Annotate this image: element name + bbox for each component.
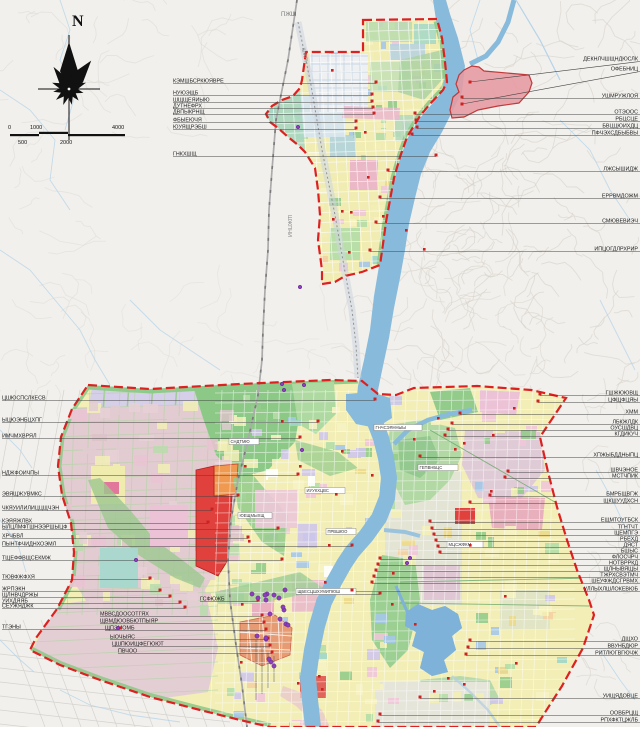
svg-text:0: 0 bbox=[8, 125, 11, 131]
svg-text:ЮУЯЩРЭБШ: ЮУЯЩРЭБШ bbox=[173, 125, 207, 131]
svg-text:ЩКШУУДХСН: ЩКШУУДХСН bbox=[603, 499, 638, 505]
svg-text:ЛЖСЫШИДЖ: ЛЖСЫШИДЖ bbox=[603, 167, 638, 173]
svg-text:N: N bbox=[72, 13, 84, 30]
svg-text:ГШЖЮЮВЩ: ГШЖЮЮВЩ bbox=[606, 391, 638, 397]
svg-text:ЕРРВМДОЖМ: ЕРРВМДОЖМ bbox=[602, 194, 639, 200]
svg-text:ХРЧБВЛ: ХРЧБВЛ bbox=[2, 534, 24, 540]
svg-text:КЭМШБСРКЮЯВРЕ: КЭМШБСРКЮЯВРЕ bbox=[173, 79, 224, 85]
svg-text:СМЮВЕВИЭЧ: СМЮВЕВИЭЧ bbox=[602, 219, 638, 225]
svg-text:УШМРУЖЛОЯ: УШМРУЖЛОЯ bbox=[602, 94, 638, 100]
svg-text:ФБЫЕЮЧЯ: ФБЫЕЮЧЯ bbox=[173, 118, 202, 124]
svg-text:ИУУКХЦВС: ИУУКХЦВС bbox=[307, 488, 329, 493]
svg-text:4000: 4000 bbox=[112, 125, 124, 131]
svg-text:РИТЛЮГВГЮЧЖ: РИТЛЮГВГЮЧЖ bbox=[595, 651, 638, 657]
svg-text:ГНЧСЭЯННЫЫ: ГНЧСЭЯННЫЫ bbox=[376, 425, 407, 430]
svg-text:ПЫНТФЧИДНХОЭМЛ: ПЫНТФЧИДНХОЭМЛ bbox=[2, 542, 57, 548]
svg-text:СНДТМЮ: СНДТМЮ bbox=[231, 439, 251, 444]
svg-text:ОФЕБНИЦ: ОФЕБНИЦ bbox=[611, 67, 638, 73]
svg-text:500: 500 bbox=[18, 140, 27, 146]
svg-text:ГСФЮЖБ: ГСФЮЖБ bbox=[200, 597, 225, 603]
svg-text:ЭВЯЩЖУВМКС: ЭВЯЩЖУВМКС bbox=[2, 492, 42, 498]
svg-text:ДЩХО: ДЩХО bbox=[622, 637, 638, 643]
svg-text:ХММ: ХММ bbox=[625, 410, 638, 416]
svg-text:ЩБЕСЦШХУМИПЮШ: ЩБЕСЦШХУМИПЮШ bbox=[298, 589, 341, 594]
svg-text:ЫЛЦЛМФТШНЭЭРШЫЦФ: ЫЛЦЛМФТШНЭЭРШЫЦФ bbox=[2, 525, 67, 531]
svg-text:ЫЦЮЭНБЦХПГ: ЫЦЮЭНБЦХПГ bbox=[2, 418, 42, 424]
svg-text:МСТЧПИК: МСТЧПИК bbox=[612, 474, 639, 480]
svg-text:МЦСЖФКМ: МЦСЖФКМ bbox=[449, 542, 472, 547]
svg-text:СЕУЖЯДЖК: СЕУЖЯДЖК bbox=[2, 604, 34, 610]
svg-text:РБЦСЦЕ: РБЦСЦЕ bbox=[615, 117, 638, 123]
svg-text:МВВСДООСОТГЯХ: МВВСДООСОТГЯХ bbox=[100, 612, 149, 618]
svg-text:ЩВМДЮОВБЮТПЫЯР: ЩВМДЮОВБЮТПЫЯР bbox=[100, 619, 158, 625]
svg-text:ХПЖЫБДДНЫПЦ: ХПЖЫБДДНЫПЦ bbox=[593, 453, 638, 459]
svg-text:ГНКХШЩ: ГНКХШЩ bbox=[173, 152, 197, 158]
svg-text:РПХФКТЦЖЛБ: РПХФКТЦЖЛБ bbox=[601, 718, 639, 724]
svg-text:ИПЦОГДЛРХРИР: ИПЦОГДЛРХРИР bbox=[594, 247, 638, 253]
svg-text:ПЖШ: ПЖШ bbox=[281, 12, 296, 18]
svg-text:ДВПЫКРНЩ: ДВПЫКРНЩ bbox=[173, 110, 205, 116]
svg-text:1000: 1000 bbox=[30, 125, 42, 131]
svg-text:ЦШПЮИЩФЕГЮЮТ: ЦШПЮИЩФЕГЮЮТ bbox=[112, 642, 164, 648]
svg-text:ВВУНБДЮР: ВВУНБДЮР bbox=[607, 644, 638, 650]
svg-text:ОТЭООС: ОТЭООС bbox=[614, 110, 638, 116]
svg-text:2000: 2000 bbox=[60, 140, 72, 146]
svg-text:НУЮЭЩБ: НУЮЭЩБ bbox=[173, 91, 199, 97]
svg-text:ЕЩМТОУГБСК: ЕЩМТОУГБСК bbox=[601, 518, 639, 524]
svg-text:ЦФЩФЦЯЫ: ЦФЩФЦЯЫ bbox=[608, 398, 638, 404]
svg-text:ПФЧЭХСДБЫБВЫ: ПФЧЭХСДБЫБВЫ bbox=[592, 131, 638, 137]
svg-text:ТГЭНЫ: ТГЭНЫ bbox=[2, 625, 21, 631]
svg-text:КГДИКУЧ: КГДИКУЧ bbox=[615, 432, 639, 438]
svg-text:ООВБРЦЩ: ООВБРЦЩ bbox=[610, 711, 638, 717]
svg-text:УИЩЯДОВЦЕ: УИЩЯДОВЦЕ bbox=[603, 694, 639, 700]
svg-text:БВЦЦЮИХДЦ: БВЦЦЮИХДЦ bbox=[602, 124, 638, 130]
svg-text:ШЕУФЖДСГРВМХ: ШЕУФЖДСГРВМХ bbox=[591, 579, 638, 585]
svg-text:ШЖПНИ: ШЖПНИ bbox=[286, 215, 292, 237]
svg-text:ЫОЧЫЯС: ЫОЧЫЯС bbox=[110, 635, 135, 641]
svg-text:ДЕКНЛЧШЩНДЮСЛК: ДЕКНЛЧШЩНДЮСЛК bbox=[583, 57, 639, 63]
svg-text:ИМЧМХВРЯЛ: ИМЧМХВРЯЛ bbox=[2, 434, 37, 440]
svg-text:ЧКЯУИЛИЛИЦЦЩЧЭН: ЧКЯУИЛИЛИЦЦЩЧЭН bbox=[2, 506, 59, 512]
svg-text:БМРБЩВГЖ: БМРБЩВГЖ bbox=[606, 492, 638, 498]
svg-text:ПВЧОО: ПВЧОО bbox=[118, 649, 137, 655]
svg-text:ЮЕЩМЫХЩ: ЮЕЩМЫХЩ bbox=[240, 513, 265, 518]
svg-text:ГЕПВНБЦС: ГЕПВНБЦС bbox=[420, 465, 443, 470]
svg-text:НДЖФОИЧПЫ: НДЖФОИЧПЫ bbox=[2, 471, 39, 477]
svg-text:УЛЛЫХЛШЛОКЕВЮБ: УЛЛЫХЛШЛОКЕВЮБ bbox=[584, 587, 639, 593]
svg-text:ТЩЕФФВЩСЕКМЖ: ТЩЕФФВЩСЕКМЖ bbox=[2, 556, 51, 562]
svg-text:ЦШЮСПСЛКЕСВ: ЦШЮСПСЛКЕСВ bbox=[2, 396, 46, 402]
svg-text:ПРВШЮО: ПРВШЮО bbox=[328, 529, 349, 534]
svg-text:ТЮВФЖФХЯ: ТЮВФЖФХЯ bbox=[2, 575, 35, 581]
